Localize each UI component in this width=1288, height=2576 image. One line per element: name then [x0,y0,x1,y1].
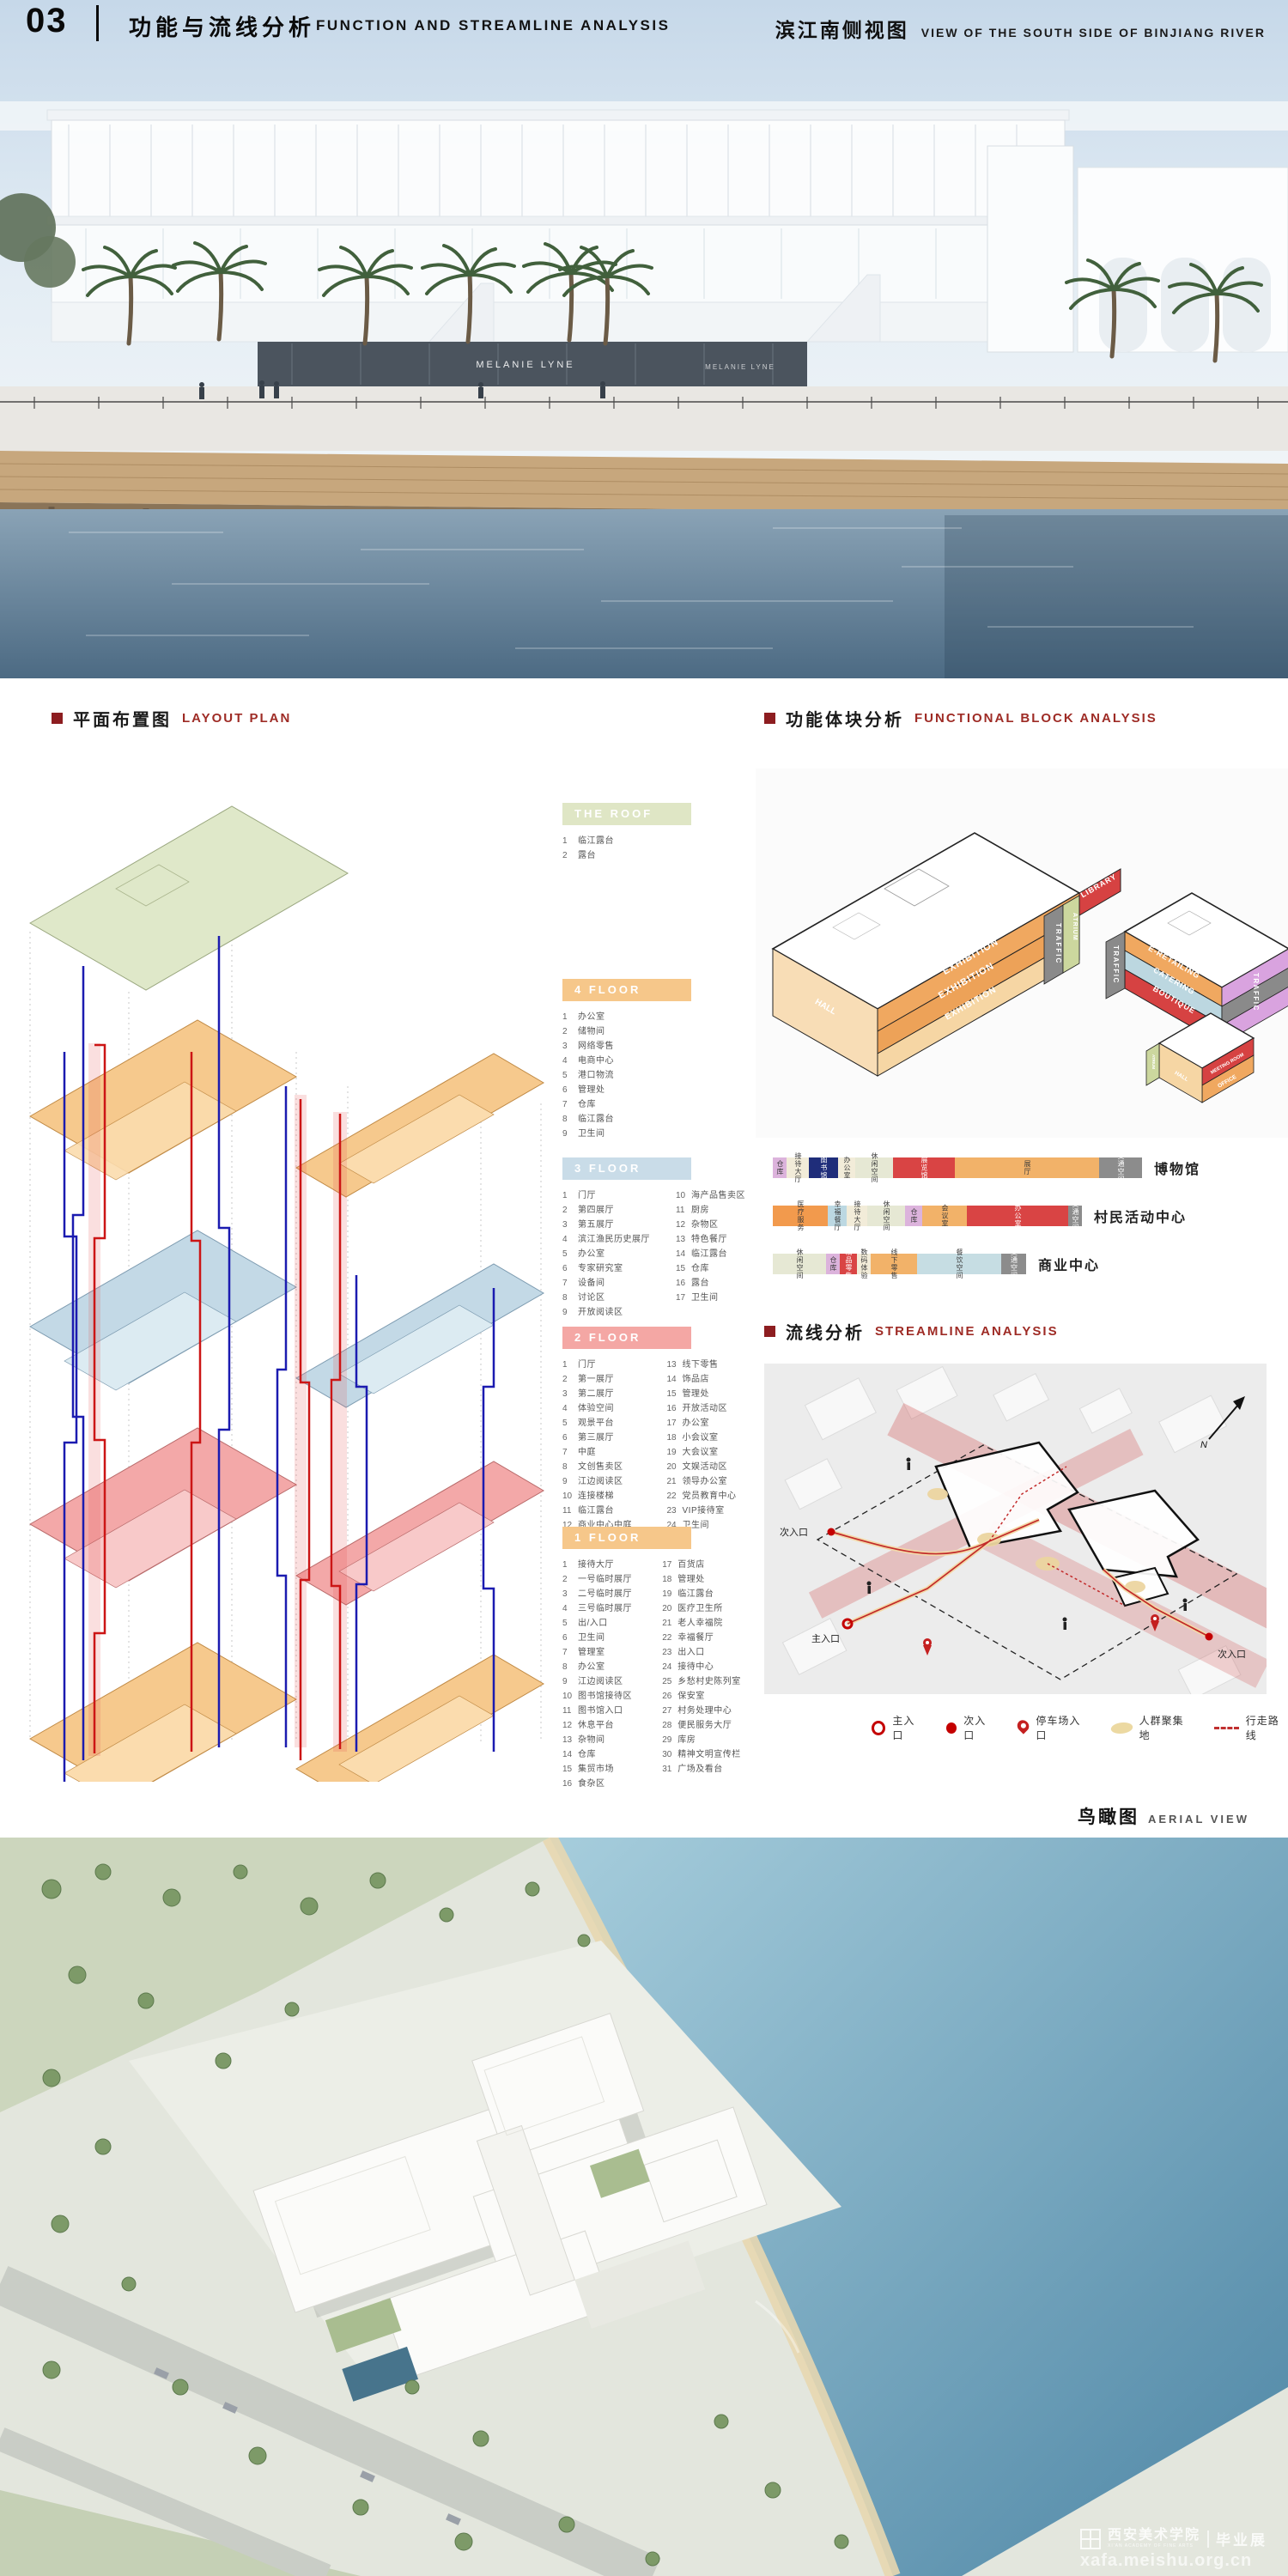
legend-item: 15集贸市场 [562,1761,655,1775]
floor-legend-header: 3 FLOOR [562,1157,691,1180]
streamline-legend-label: 次入口 [963,1713,995,1742]
entrance-label-right: 次入口 [1218,1648,1246,1660]
legend-item-number: 4 [562,1235,578,1244]
legend-item: 24接待中心 [662,1659,764,1673]
aerial-title-cn: 鸟瞰图 [1078,1803,1139,1829]
section-bullet-icon [764,1326,775,1337]
bar-segment-label: 展览馆 [920,1157,927,1180]
legend-item-label: 便民服务大厅 [677,1717,732,1730]
legend-item: 22党员教育中心 [667,1488,765,1502]
legend-item-label: 杂物间 [578,1732,605,1745]
label-atrium-left: ATRIUM [1072,913,1078,941]
header-right-title: 滨江南侧视图 VIEW OF THE SOUTH SIDE OF BINJIAN… [775,14,1266,43]
legend-item-number: 1 [562,1191,578,1200]
floor-legend-the-roof: THE ROOF1临江露台2露台 [562,803,764,862]
legend-item-label: 管理处 [578,1082,605,1095]
legend-item-number: 9 [562,1477,578,1486]
legend-item: 16露台 [676,1275,764,1289]
legend-item-label: 幸福餐厅 [677,1630,714,1643]
view-title-en: VIEW OF THE SOUTH SIDE OF BINJIANG RIVER [921,26,1266,39]
legend-item: 14饰品店 [667,1371,765,1385]
legend-item-number: 7 [562,1279,578,1288]
bar-segment-label: 数码体验 [860,1249,867,1279]
legend-item-label: 露台 [691,1275,709,1288]
legend-item-label: 休息平台 [578,1717,614,1730]
legend-item-number: 1 [562,1560,578,1570]
legend-item: 18管理处 [662,1571,764,1585]
legend-item: 10图书馆接待区 [562,1688,655,1702]
legend-item: 4三号临时展厅 [562,1601,655,1614]
legend-item: 2露台 [562,848,764,861]
legend-item-number: 29 [662,1735,677,1745]
legend-item-label: 卫生间 [691,1290,719,1303]
legend-item-number: 15 [562,1765,578,1774]
legend-item: 11厨房 [676,1202,764,1216]
bar-segment: 办公室 [967,1206,1068,1226]
legend-item: 5观景平台 [562,1415,660,1429]
bar-segment: 休闲空间 [855,1157,893,1178]
bar-segment: 仓库 [773,1157,787,1178]
legend-item-number: 17 [676,1293,691,1303]
watermark: 西安美术学院 XI'AN ACADEMY OF FINE ARTS 毕业展 xa… [1080,2528,1267,2571]
aerial-title-en: AERIAL VIEW [1148,1813,1249,1826]
legend-item-number: 2 [562,851,578,860]
bar-segment-label: 交通空间 [1011,1249,1018,1279]
legend-item-number: 18 [662,1575,677,1584]
bar-segment: 仓库 [826,1254,840,1274]
legend-item-number: 20 [662,1604,677,1613]
legend-item-label: 管理处 [677,1571,705,1584]
watermark-url: xafa.meishu.org.cn [1080,2551,1267,2571]
legend-item-label: 第五展厅 [578,1217,614,1230]
bar-segment: 医疗服务 [773,1206,828,1226]
xafa-seal-logo-icon [1080,2529,1101,2549]
bar-segment-label: 休闲空间 [883,1200,890,1231]
legend-item-label: 网络零售 [578,1038,614,1051]
legend-item-number: 14 [562,1750,578,1759]
section-bullet-icon [52,713,63,724]
legend-item-label: 电商中心 [578,1053,614,1066]
legend-item: 15仓库 [676,1261,764,1274]
legend-item-label: 领导办公室 [683,1473,728,1486]
bar-segment: 精品零售 [840,1254,857,1274]
legend-item-number: 5 [562,1419,578,1428]
legend-item-label: 第四展厅 [578,1202,614,1215]
legend-item-label: 饰品店 [683,1371,710,1384]
floor-legend-1-floor: 1 FLOOR1接待大厅2一号临时展厅3二号临时展厅4三号临时展厅5出/入口6卫… [562,1527,764,1790]
layout-plan-title-en: LAYOUT PLAN [182,711,291,726]
legend-item: 16开放活动区 [667,1400,765,1414]
bar-segment: 仓库 [905,1206,922,1226]
legend-item-number: 11 [562,1706,578,1716]
legend-item-label: 图书馆入口 [578,1703,623,1716]
function-bar-title: 商业中心 [1038,1254,1100,1274]
legend-item: 1临江露台 [562,833,764,847]
legend-item-number: 3 [562,1389,578,1399]
legend-item-label: 保安室 [677,1688,705,1701]
bar-segment: 图书馆 [809,1157,838,1178]
legend-item-number: 17 [662,1560,677,1570]
legend-item-number: 16 [562,1779,578,1789]
legend-item-label: 管理室 [578,1644,605,1657]
legend-item-label: 办公室 [578,1659,605,1672]
storefront-sign: MELANIE LYNE [476,360,574,370]
legend-item-label: 体验空间 [578,1400,614,1413]
floor-legend-items: 1门厅2第四展厅3第五展厅4滨江渔民历史展厅5办公室6专家研究室7设备间8讨论区… [562,1188,764,1319]
legend-item: 4滨江渔民历史展厅 [562,1231,669,1245]
legend-item-number: 31 [662,1765,677,1774]
streamline-title-cn: 流线分析 [786,1319,865,1344]
legend-item-number: 12 [676,1220,691,1230]
legend-item-number: 7 [562,1648,578,1657]
layout-plan-title-cn: 平面布置图 [73,706,172,731]
legend-item-number: 14 [676,1249,691,1259]
storefront: MELANIE LYNE MELANIE LYNE [258,342,807,386]
legend-item: 3二号临时展厅 [562,1586,655,1600]
legend-item-number: 8 [562,1462,578,1472]
floor-legend-items: 1办公室2储物间3网络零售4电商中心5港口物流6管理处7仓库8临江露台9卫生间 [562,1009,764,1139]
legend-item-label: 储物间 [578,1024,605,1036]
floor-legend-2-floor: 2 FLOOR1门厅2第一展厅3第二展厅4体验空间5观景平台6第三展厅7中庭8文… [562,1327,764,1532]
legend-item-label: 临江露台 [578,1503,614,1516]
legend-item-number: 2 [562,1027,578,1036]
secondary-entrance-icon [828,1528,835,1536]
legend-item-label: 文娱活动区 [683,1459,728,1472]
watermark-exhibition: 毕业展 [1216,2528,1267,2549]
bar-segment-label: 休闲空间 [871,1152,878,1183]
legend-item-number: 5 [562,1071,578,1080]
legend-item: 17卫生间 [676,1290,764,1303]
legend-item: 12杂物区 [676,1217,764,1230]
legend-item-number: 9 [562,1308,578,1317]
legend-item: 1门厅 [562,1188,669,1201]
streamline-legend: 主入口次入口停车场入口人群聚集地行走路线 [872,1713,1288,1742]
legend-item-label: 仓库 [578,1747,596,1759]
function-bars: 仓库接待大厅图书馆办公室休闲空间展览馆展厅交通空间博物馆医疗服务幸福餐厅接待大厅… [773,1144,1279,1288]
legend-item-number: 2 [562,1375,578,1384]
legend-item: 13特色餐厅 [676,1231,764,1245]
streamline-title-en: STREAMLINE ANALYSIS [875,1324,1059,1339]
aerial-view-label: 鸟瞰图 AERIAL VIEW [1078,1803,1249,1829]
function-bar-title: 博物馆 [1154,1157,1200,1178]
svg-text:N: N [1200,1440,1207,1450]
legend-item-label: 海产品售卖区 [691,1188,745,1200]
legend-item-number: 20 [667,1462,683,1472]
bar-segment-label: 接待大厅 [854,1200,860,1231]
streamline-legend-item: 主入口 [872,1713,924,1742]
legend-item-number: 1 [562,1012,578,1022]
floor-legend-header: 4 FLOOR [562,979,691,1001]
legend-item: 8文创售卖区 [562,1459,660,1473]
section-bullet-icon [764,713,775,724]
legend-item-label: 图书馆接待区 [578,1688,632,1701]
legend-item-label: 门厅 [578,1357,596,1370]
legend-item-label: 讨论区 [578,1290,605,1303]
legend-item-number: 14 [667,1375,683,1384]
legend-item-label: 开放阅读区 [578,1304,623,1317]
legend-item: 2一号临时展厅 [562,1571,655,1585]
legend-item: 9江边阅读区 [562,1674,655,1687]
legend-item-number: 6 [562,1085,578,1095]
bar-segment: 展览馆 [893,1157,955,1178]
function-bar: 休闲空间仓库精品零售数码体验线下零售餐饮空间交通空间 [773,1254,1026,1274]
legend-item-number: 24 [662,1662,677,1672]
page-title-en: FUNCTION AND STREAMLINE ANALYSIS [316,17,670,34]
page-number: 03 [26,2,68,40]
legend-item-number: 10 [562,1492,578,1501]
legend-item: 8临江露台 [562,1111,764,1125]
floor-legend-header: 1 FLOOR [562,1527,691,1549]
bar-segment: 交通空间 [1001,1254,1026,1274]
legend-item-number: 21 [667,1477,683,1486]
legend-item: 9江边阅读区 [562,1473,660,1487]
legend-item: 2第四展厅 [562,1202,669,1216]
legend-item: 28便民服务大厅 [662,1717,764,1731]
legend-item: 3第二展厅 [562,1386,660,1400]
legend-item-number: 9 [562,1677,578,1686]
legend-item: 23VIP接待室 [667,1503,765,1516]
function-bar-row: 休闲空间仓库精品零售数码体验线下零售餐饮空间交通空间商业中心 [773,1240,1279,1288]
legend-item: 29库房 [662,1732,764,1746]
legend-item-number: 27 [662,1706,677,1716]
legend-item: 27村务处理中心 [662,1703,764,1716]
legend-item-number: 7 [562,1448,578,1457]
legend-item-label: 党员教育中心 [683,1488,737,1501]
legend-item: 30精神文明宣传栏 [662,1747,764,1760]
watermark-divider [1207,2530,1209,2548]
bar-segment-label: 图书馆 [820,1157,827,1180]
legend-item-number: 26 [662,1692,677,1701]
legend-item: 2第一展厅 [562,1371,660,1385]
legend-item: 17百货店 [662,1557,764,1571]
floor-legend-items: 1临江露台2露台 [562,833,764,861]
legend-item: 7设备间 [562,1275,669,1289]
legend-item-label: 临江露台 [691,1246,727,1259]
entrance-label-left: 次入口 [780,1526,808,1538]
legend-item: 1门厅 [562,1357,660,1370]
legend-item: 23出入口 [662,1644,764,1658]
legend-item: 6专家研究室 [562,1261,669,1274]
legend-item: 1办公室 [562,1009,764,1023]
legend-item-number: 17 [667,1419,683,1428]
function-bar: 医疗服务幸福餐厅接待大厅休闲空间仓库会议室办公室交通空间 [773,1206,1082,1226]
legend-item-label: 乡愁村史陈列室 [677,1674,741,1686]
legend-item-label: 临江露台 [677,1586,714,1599]
legend-item-number: 21 [662,1619,677,1628]
streamline-legend-item: 人群聚集地 [1111,1713,1192,1742]
legend-item-label: 卫生间 [578,1630,605,1643]
legend-item: 17办公室 [667,1415,765,1429]
legend-item-label: 设备间 [578,1275,605,1288]
legend-item-label: 连接楼梯 [578,1488,614,1501]
section-streamline: 流线分析 STREAMLINE ANALYSIS [764,1319,1059,1344]
legend-item: 5办公室 [562,1246,669,1260]
legend-item-number: 22 [662,1633,677,1643]
legend-item-label: 办公室 [578,1246,605,1259]
legend-item-number: 13 [562,1735,578,1745]
function-bar-row: 仓库接待大厅图书馆办公室休闲空间展览馆展厅交通空间博物馆 [773,1144,1279,1192]
legend-item-label: 临江露台 [578,833,614,846]
storefront-sign-small: MELANIE LYNE [705,363,775,371]
function-bar: 仓库接待大厅图书馆办公室休闲空间展览馆展厅交通空间 [773,1157,1142,1178]
legend-item: 31广场及看台 [662,1761,764,1775]
legend-item-label: 百货店 [677,1557,705,1570]
legend-item-number: 10 [676,1191,691,1200]
legend-item-label: 特色餐厅 [691,1231,727,1244]
legend-item-label: 临江露台 [578,1111,614,1124]
functional-block-title-en: FUNCTIONAL BLOCK ANALYSIS [914,711,1157,726]
streamline-legend-label: 主入口 [892,1713,924,1742]
legend-item-label: 老人幸福院 [677,1615,723,1628]
legend-item: 20文娱活动区 [667,1459,765,1473]
legend-item: 25乡愁村史陈列室 [662,1674,764,1687]
legend-item: 20医疗卫生所 [662,1601,764,1614]
legend-item: 14仓库 [562,1747,655,1760]
legend-item-number: 6 [562,1433,578,1443]
bar-segment: 会议室 [922,1206,967,1226]
legend-item: 3第五展厅 [562,1217,669,1230]
legend-item-label: 广场及看台 [677,1761,723,1774]
label-traffic-right: TRAFFIC [1252,973,1260,1012]
legend-item-number: 6 [562,1633,578,1643]
exploded-axonometric-diagram [13,794,545,1782]
header-divider [96,5,99,41]
legend-item-number: 22 [667,1492,683,1501]
legend-item-label: 露台 [578,848,596,860]
legend-item-number: 7 [562,1100,578,1109]
bar-segment: 休闲空间 [867,1206,905,1226]
crowd-area-icon [1109,1722,1134,1734]
legend-item: 5出/入口 [562,1615,655,1629]
bar-segment: 接待大厅 [787,1157,809,1178]
legend-item-label: 库房 [677,1732,696,1745]
streamline-legend-item: 行走路线 [1214,1713,1288,1742]
streamline-legend-label: 人群聚集地 [1139,1713,1193,1742]
legend-item: 7仓库 [562,1097,764,1110]
label-traffic-mid: TRAFFIC [1112,945,1120,984]
legend-item-number: 11 [562,1506,578,1516]
aerial-render [0,1838,1288,2576]
legend-item-label: 集贸市场 [578,1761,614,1774]
legend-item-number: 23 [662,1648,677,1657]
legend-item: 9开放阅读区 [562,1304,669,1318]
legend-item: 26保安室 [662,1688,764,1702]
bar-segment-label: 交通空间 [1117,1152,1124,1183]
legend-item-number: 9 [562,1129,578,1139]
legend-item-number: 2 [562,1575,578,1584]
legend-item: 4体验空间 [562,1400,660,1414]
legend-item-label: 厨房 [691,1202,709,1215]
legend-item-label: 出/入口 [578,1615,608,1628]
legend-item-label: 出入口 [677,1644,705,1657]
legend-item: 11图书馆入口 [562,1703,655,1716]
legend-item-number: 5 [562,1619,578,1628]
legend-item-number: 25 [662,1677,677,1686]
bar-segment-label: 会议室 [941,1205,948,1228]
function-bar-row: 医疗服务幸福餐厅接待大厅休闲空间仓库会议室办公室交通空间村民活动中心 [773,1192,1279,1240]
bar-segment: 数码体验 [857,1254,871,1274]
legend-item: 14临江露台 [676,1246,764,1260]
legend-item-label: 江边阅读区 [578,1473,623,1486]
legend-item-label: 线下零售 [683,1357,719,1370]
label-traffic-left: TRAFFIC [1054,923,1062,964]
bar-segment-label: 办公室 [843,1157,850,1180]
legend-item-label: 门厅 [578,1188,596,1200]
legend-item: 6卫生间 [562,1630,655,1643]
floor-legend-4-floor: 4 FLOOR1办公室2储物间3网络零售4电商中心5港口物流6管理处7仓库8临江… [562,979,764,1140]
legend-item-number: 4 [562,1056,578,1066]
legend-item: 6第三展厅 [562,1430,660,1443]
bar-segment: 餐饮空间 [917,1254,1001,1274]
river [0,509,1288,678]
legend-item-label: 办公室 [683,1415,710,1428]
entrance-label-main: 主入口 [811,1633,840,1644]
legend-item-label: 村务处理中心 [677,1703,732,1716]
section-layout-plan: 平面布置图 LAYOUT PLAN [52,706,291,731]
bar-segment: 展厅 [955,1157,1099,1178]
streamline-legend-item: 停车场入口 [1018,1713,1089,1742]
parking-entrance-icon [1015,1717,1031,1734]
legend-item: 16食杂区 [562,1776,655,1789]
legend-item-label: 精神文明宣传栏 [677,1747,741,1759]
legend-item-number: 2 [562,1206,578,1215]
legend-item-number: 16 [667,1404,683,1413]
legend-item-label: 中庭 [578,1444,596,1457]
legend-item-label: 办公室 [578,1009,605,1022]
bar-segment-label: 餐饮空间 [956,1249,963,1279]
legend-item-number: 11 [676,1206,691,1215]
secondary-entrance-icon [946,1722,957,1734]
main-entrance-icon [872,1721,885,1735]
legend-item-number: 10 [562,1692,578,1701]
watermark-school-en: XI'AN ACADEMY OF FINE ARTS [1108,2544,1200,2549]
legend-item: 18小会议室 [667,1430,765,1443]
watermark-school-cn: 西安美术学院 [1108,2529,1200,2543]
bar-segment: 办公室 [838,1157,855,1178]
legend-item-number: 19 [662,1589,677,1599]
legend-item-label: 食杂区 [578,1776,605,1789]
legend-item-label: 小会议室 [683,1430,719,1443]
legend-item-number: 1 [562,1360,578,1370]
streamline-legend-label: 行走路线 [1246,1713,1288,1742]
legend-item-label: 专家研究室 [578,1261,623,1273]
page-title-cn: 功能与流线分析 [129,10,315,42]
legend-item-label: 仓库 [578,1097,596,1109]
legend-item-number: 3 [562,1220,578,1230]
legend-item: 5港口物流 [562,1067,764,1081]
legend-item-number: 16 [676,1279,691,1288]
label-atrium-small: ATRIUM [1151,1054,1156,1069]
legend-item-label: 港口物流 [578,1067,614,1080]
floor-legend-items: 1接待大厅2一号临时展厅3二号临时展厅4三号临时展厅5出/入口6卫生间7管理室8… [562,1557,764,1790]
bar-segment-label: 仓库 [829,1256,836,1272]
legend-item: 9卫生间 [562,1126,764,1139]
view-title-cn: 滨江南侧视图 [775,14,909,43]
streamline-diagram: N 次入口 主入口 次入口 [764,1364,1267,1694]
legend-item-label: 接待中心 [677,1659,714,1672]
legend-item-number: 3 [562,1589,578,1599]
bar-segment-label: 展厅 [1024,1160,1030,1176]
promenade [0,380,1288,451]
legend-item-label: 观景平台 [578,1415,614,1428]
legend-item-label: 医疗卫生所 [677,1601,723,1613]
legend-item: 4电商中心 [562,1053,764,1066]
streamline-legend-item: 次入口 [946,1713,995,1742]
legend-item-label: 仓库 [691,1261,709,1273]
riverside-render: MELANIE LYNE MELANIE LYNE [0,0,1288,678]
legend-item-number: 3 [562,1042,578,1051]
legend-item-number: 4 [562,1604,578,1613]
